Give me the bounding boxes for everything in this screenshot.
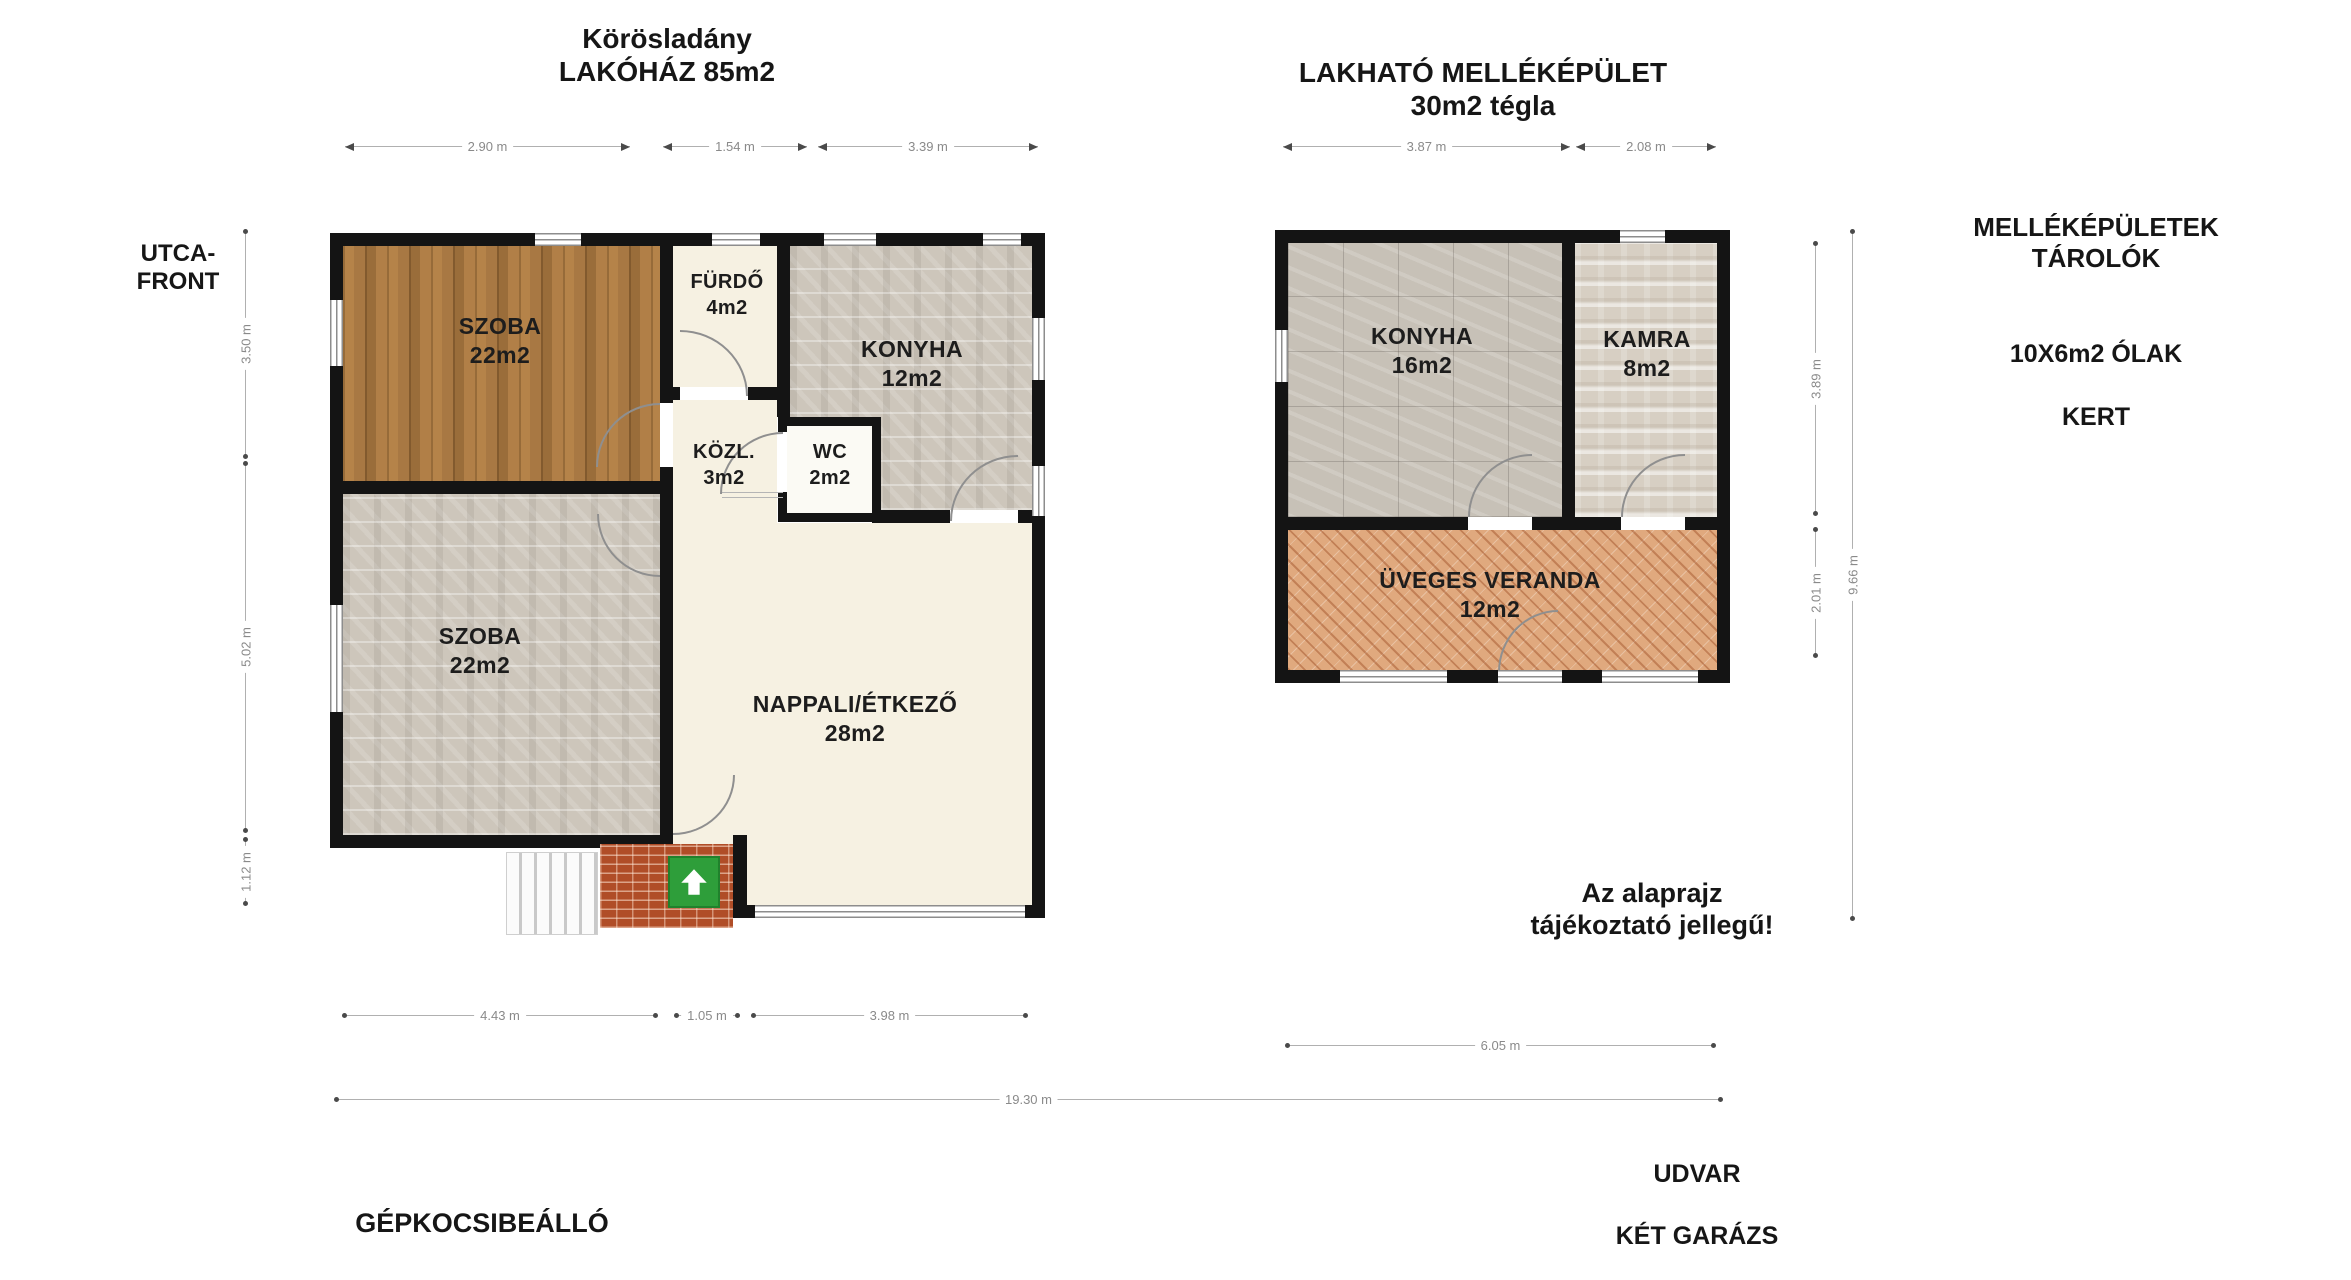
window (712, 233, 760, 246)
dimension-out-bottom: 6.05 m (1286, 1045, 1715, 1046)
window (1602, 670, 1698, 683)
outbuilding-title: LAKHATÓ MELLÉKÉPÜLET 30m2 tégla (1299, 56, 1667, 122)
outbuilding-title-line1: LAKHATÓ MELLÉKÉPÜLET (1299, 57, 1667, 88)
dimension-out-right-2: 2.01 m (1815, 528, 1816, 657)
arrow-icon (818, 143, 827, 151)
room-label-kamra: KAMRA 8m2 (1603, 325, 1691, 384)
dimension-main-bottom-3: 3.98 m (752, 1015, 1027, 1016)
floor-plan-canvas: Körösladány LAKÓHÁZ 85m2 LAKHATÓ MELLÉKÉ… (0, 0, 2351, 1280)
window (330, 300, 343, 366)
door-opening (660, 403, 673, 467)
room-label-szoba-bottom: SZOBA 22m2 (439, 622, 522, 681)
arrow-icon (1707, 143, 1716, 151)
dimension-main-top-3: 3.39 m (818, 146, 1038, 147)
window (755, 905, 1025, 918)
main-house-title-line1: Körösladány (582, 23, 752, 54)
dimension-main-left-2: 5.02 m (245, 462, 246, 832)
window (1032, 318, 1045, 380)
dimension-out-top-2: 2.08 m (1576, 146, 1716, 147)
dimension-out-right-1: 3.89 m (1815, 242, 1816, 515)
outbuildings-storage-label: MELLÉKÉPÜLETEK TÁROLÓK (1973, 212, 2219, 273)
entrance-arrow-icon (677, 865, 711, 899)
dimension-main-bottom-2: 1.05 m (675, 1015, 739, 1016)
room-label-konyha-out: KONYHA 16m2 (1371, 322, 1473, 381)
entrance-marker (668, 856, 720, 908)
yard-label: UDVAR (1653, 1160, 1740, 1190)
wall (1717, 230, 1730, 683)
window (983, 233, 1021, 246)
main-house-title-line2: LAKÓHÁZ 85m2 (559, 56, 775, 87)
room-label-konyha-main: KONYHA 12m2 (861, 335, 963, 394)
sties-label: 10X6m2 ÓLAK (2010, 340, 2182, 370)
street-front-label: UTCA- FRONT (137, 240, 220, 297)
arrow-icon (1561, 143, 1570, 151)
dimension-main-bottom-1: 4.43 m (343, 1015, 657, 1016)
window (1032, 466, 1045, 516)
door-opening (1468, 517, 1532, 530)
door-opening (1621, 517, 1685, 530)
room-label-kozl: KÖZL. 3m2 (693, 440, 755, 491)
arrow-icon (345, 143, 354, 151)
dimension-main-left-3: 1.12 m (245, 838, 246, 905)
outbuilding-title-line2: 30m2 tégla (1411, 90, 1556, 121)
dimension-out-right-total: 9.66 m (1852, 230, 1853, 920)
wall (777, 246, 790, 417)
garden-label: KERT (2062, 403, 2130, 433)
room-label-szoba-top: SZOBA 22m2 (459, 312, 542, 371)
carport-label: GÉPKOCSIBEÁLLÓ (355, 1208, 609, 1240)
wall (1275, 230, 1288, 683)
wall (660, 246, 673, 848)
window (1498, 670, 1562, 683)
dimension-main-top-2: 1.54 m (663, 146, 807, 147)
window (1275, 330, 1288, 382)
window (824, 233, 876, 246)
window (535, 233, 581, 246)
wall (330, 481, 673, 494)
room-label-furdo: FÜRDŐ 4m2 (690, 270, 763, 321)
arrow-icon (621, 143, 630, 151)
dimension-out-top-1: 3.87 m (1283, 146, 1570, 147)
room-label-wc: WC 2m2 (809, 440, 850, 491)
arrow-icon (1029, 143, 1038, 151)
arrow-icon (663, 143, 672, 151)
window (1620, 230, 1665, 243)
room-label-veranda: ÜVEGES VERANDA 12m2 (1379, 566, 1601, 625)
garages-label: KÉT GARÁZS (1616, 1222, 1779, 1252)
arrow-icon (798, 143, 807, 151)
dimension-main-left-1: 3.50 m (245, 230, 246, 458)
room-label-nappali: NAPPALI/ÉTKEZŐ 28m2 (753, 690, 958, 749)
wall (1562, 243, 1575, 530)
window (330, 605, 343, 712)
disclaimer-label: Az alaprajz tájékoztató jellegű! (1530, 878, 1773, 942)
arrow-icon (1283, 143, 1292, 151)
dimension-total-width: 19.30 m (335, 1099, 1722, 1100)
window (1340, 670, 1447, 683)
main-house-title: Körösladány LAKÓHÁZ 85m2 (559, 22, 775, 88)
wall (330, 233, 1045, 246)
arrow-icon (1576, 143, 1585, 151)
dimension-main-top-1: 2.90 m (345, 146, 630, 147)
entrance-steps (506, 852, 598, 935)
